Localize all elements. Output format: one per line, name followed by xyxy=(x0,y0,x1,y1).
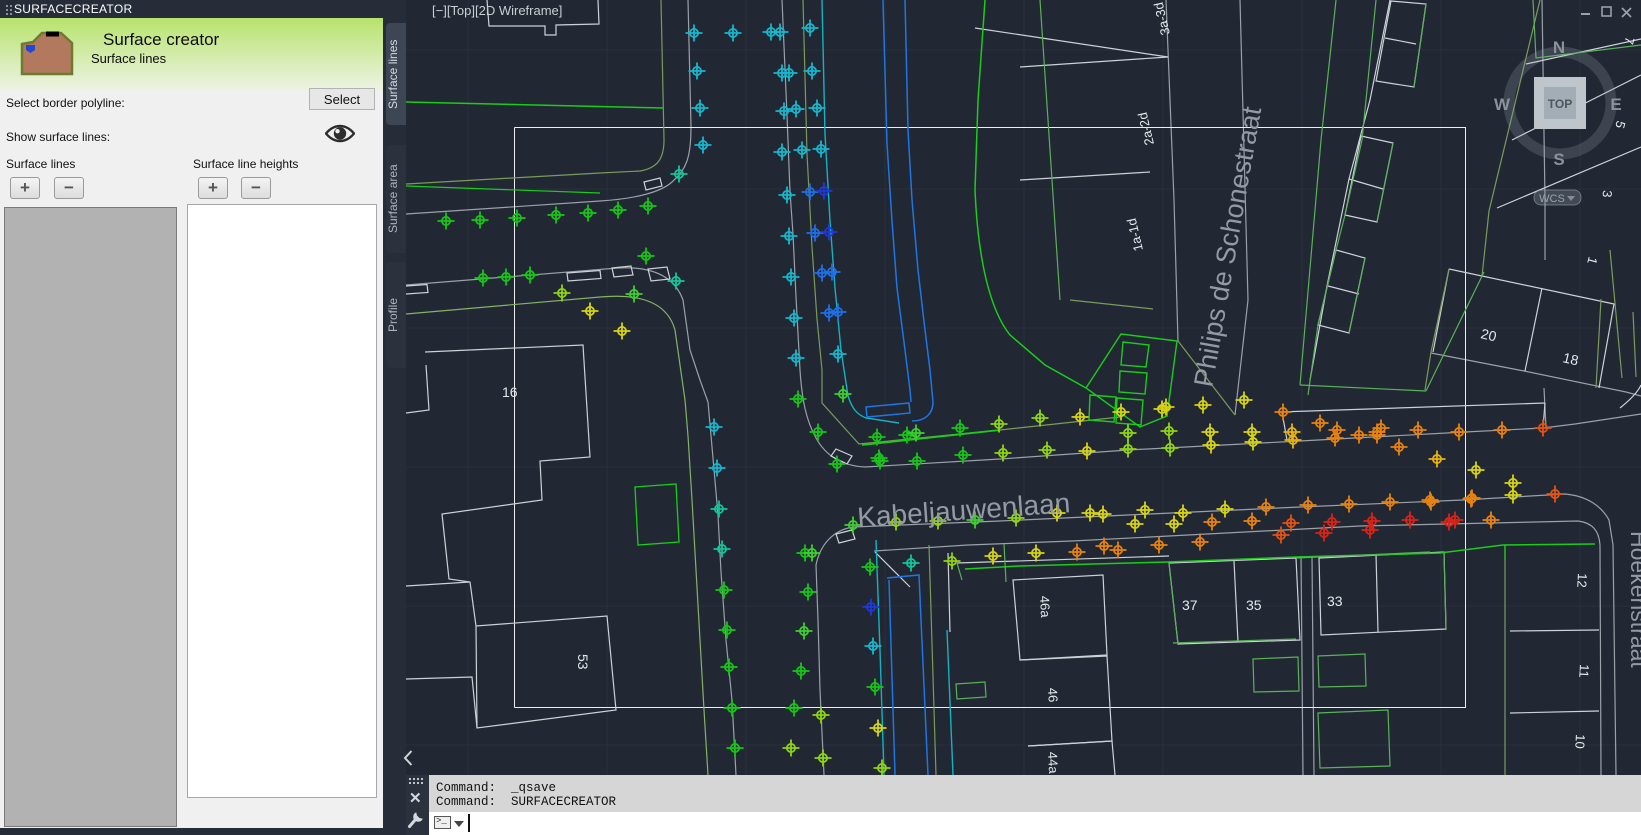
svg-text:E: E xyxy=(1610,95,1621,114)
svg-text:44a: 44a xyxy=(1045,751,1061,774)
svg-text:16: 16 xyxy=(502,384,518,400)
svg-text:S: S xyxy=(1553,150,1564,169)
svg-text:WCS: WCS xyxy=(1539,193,1565,205)
svg-text:53: 53 xyxy=(575,654,591,670)
svg-text:N: N xyxy=(1553,38,1565,57)
svg-text:10: 10 xyxy=(1572,734,1588,749)
svg-text:3: 3 xyxy=(1600,190,1615,198)
svg-text:11: 11 xyxy=(1576,664,1592,678)
svg-text:12: 12 xyxy=(1574,573,1590,588)
svg-text:35: 35 xyxy=(1246,597,1262,613)
svg-text:Hoekenstraat: Hoekenstraat xyxy=(1626,531,1641,668)
svg-text:46: 46 xyxy=(1045,687,1061,702)
svg-text:37: 37 xyxy=(1182,597,1198,613)
svg-text:46a: 46a xyxy=(1037,595,1053,618)
svg-text:33: 33 xyxy=(1327,593,1343,609)
svg-text:W: W xyxy=(1494,95,1511,114)
svg-text:TOP: TOP xyxy=(1548,97,1572,111)
